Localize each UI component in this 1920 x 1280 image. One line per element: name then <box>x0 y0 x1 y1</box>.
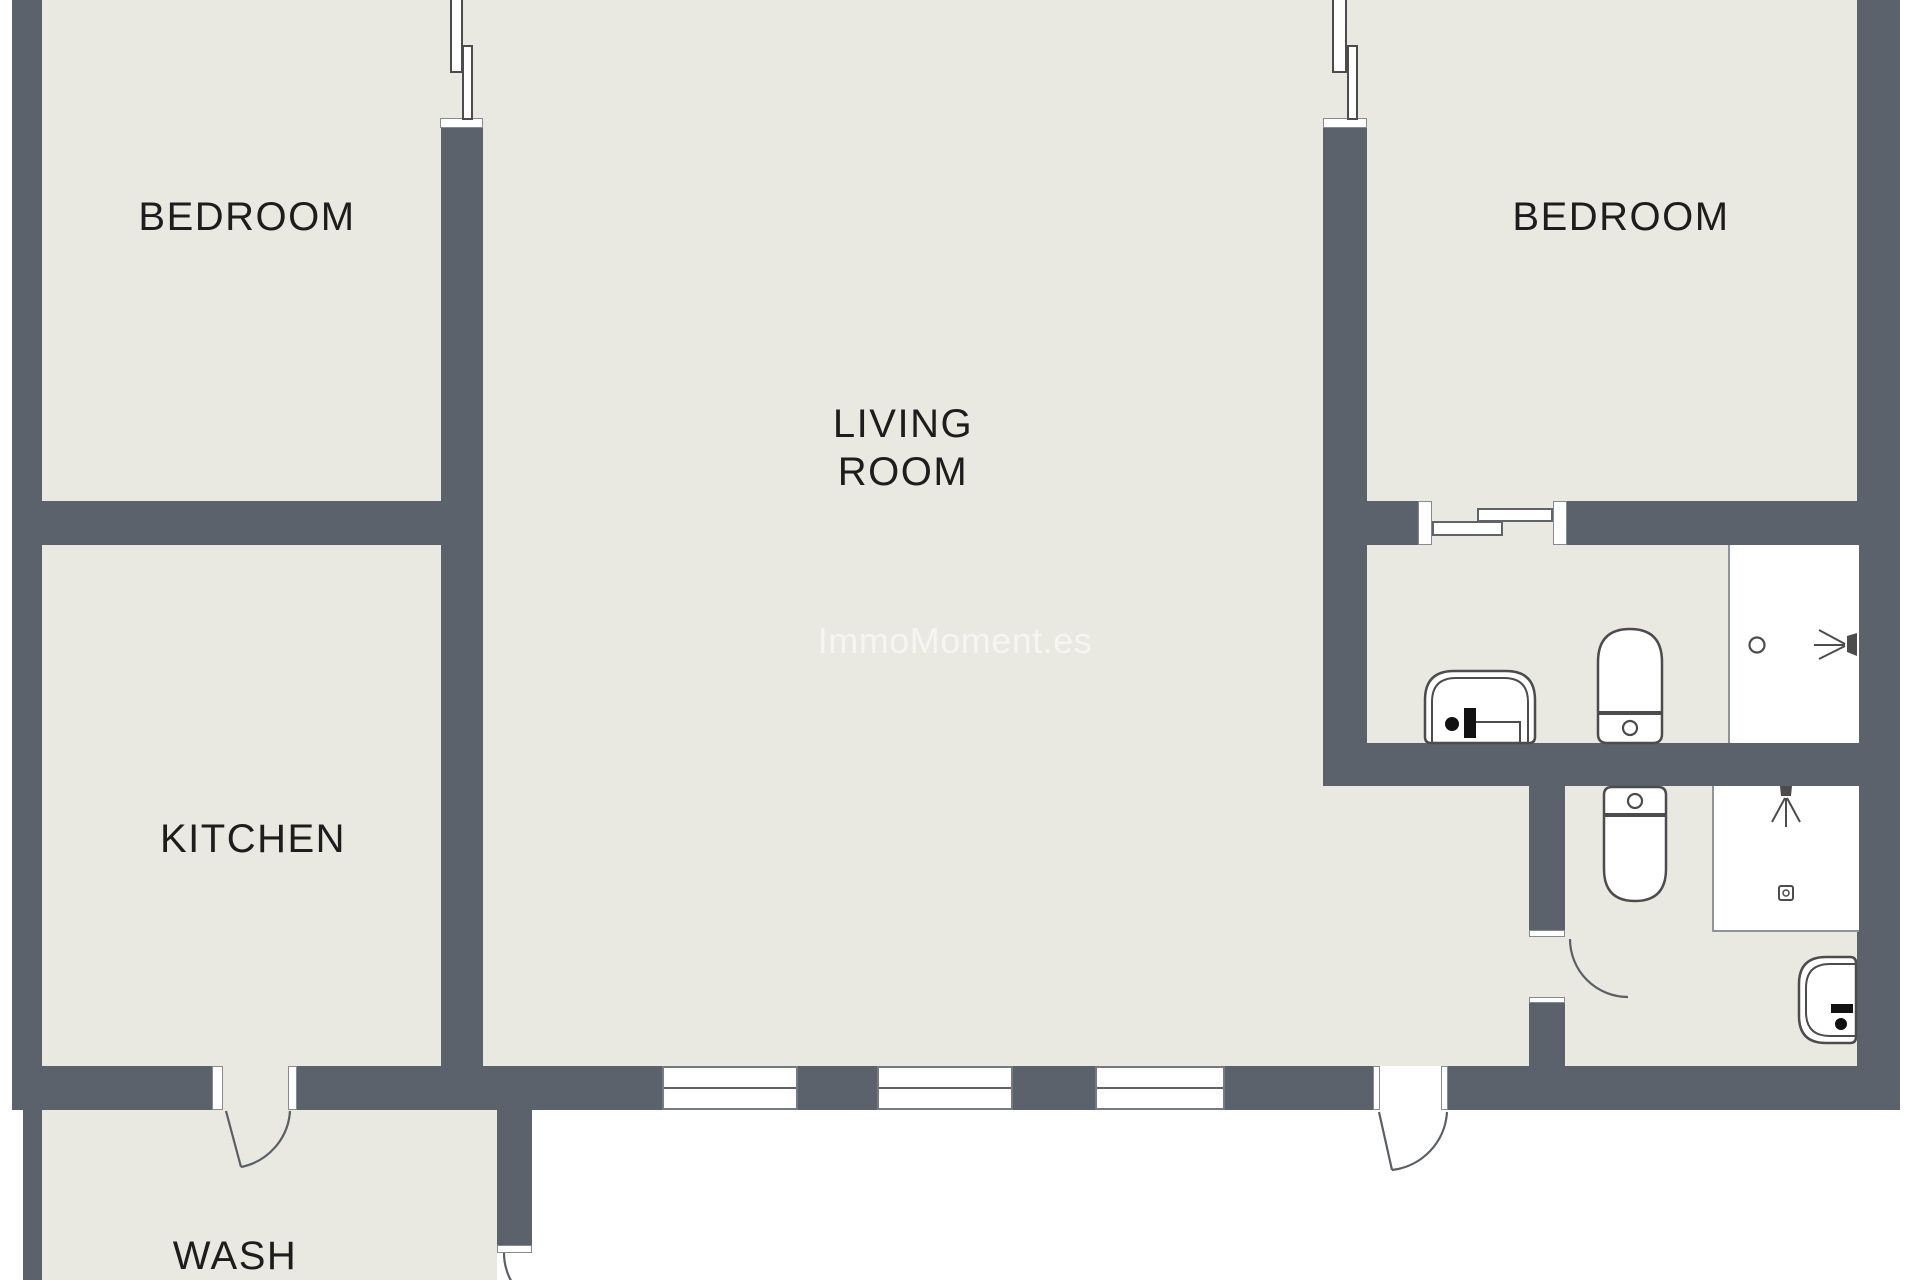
faucet-handle <box>1464 708 1476 738</box>
shower-drain-icon <box>1779 886 1793 900</box>
shower-head-icon <box>1780 786 1792 796</box>
shower-drain-icon <box>1750 638 1765 653</box>
faucet-dot <box>1445 717 1459 731</box>
kitchen-wash-door-leaf <box>226 1111 241 1167</box>
sink-lower <box>1799 957 1856 1043</box>
living-exterior-door-leaf <box>1379 1112 1392 1170</box>
living-room-label: LIVING ROOM <box>813 400 993 496</box>
shower-upper-icon <box>1750 630 1858 659</box>
sink-upper <box>1425 671 1535 743</box>
bedroom-left-label: BEDROOM <box>138 193 355 241</box>
shower-head-icon <box>1847 633 1857 656</box>
floor-plan: BEDROOM BEDROOM LIVING ROOM KITCHEN WASH… <box>0 0 1920 1280</box>
toilet-upper <box>1598 629 1662 743</box>
living-exterior-door-swing <box>1392 1112 1447 1170</box>
bathroom-lower-door-swing <box>1570 939 1628 997</box>
faucet-dot <box>1835 1018 1847 1030</box>
kitchen-wash-door-swing <box>241 1111 290 1167</box>
faucet-handle <box>1831 1004 1853 1013</box>
wash-label: WASH <box>173 1232 298 1280</box>
bedroom-right-label: BEDROOM <box>1512 193 1729 241</box>
watermark: ImmoMoment.es <box>818 620 1093 662</box>
kitchen-label: KITCHEN <box>160 815 346 863</box>
toilet-lower <box>1604 787 1666 901</box>
wash-exterior-door-swing <box>504 1253 562 1280</box>
shower-lower-icon <box>1772 786 1800 900</box>
